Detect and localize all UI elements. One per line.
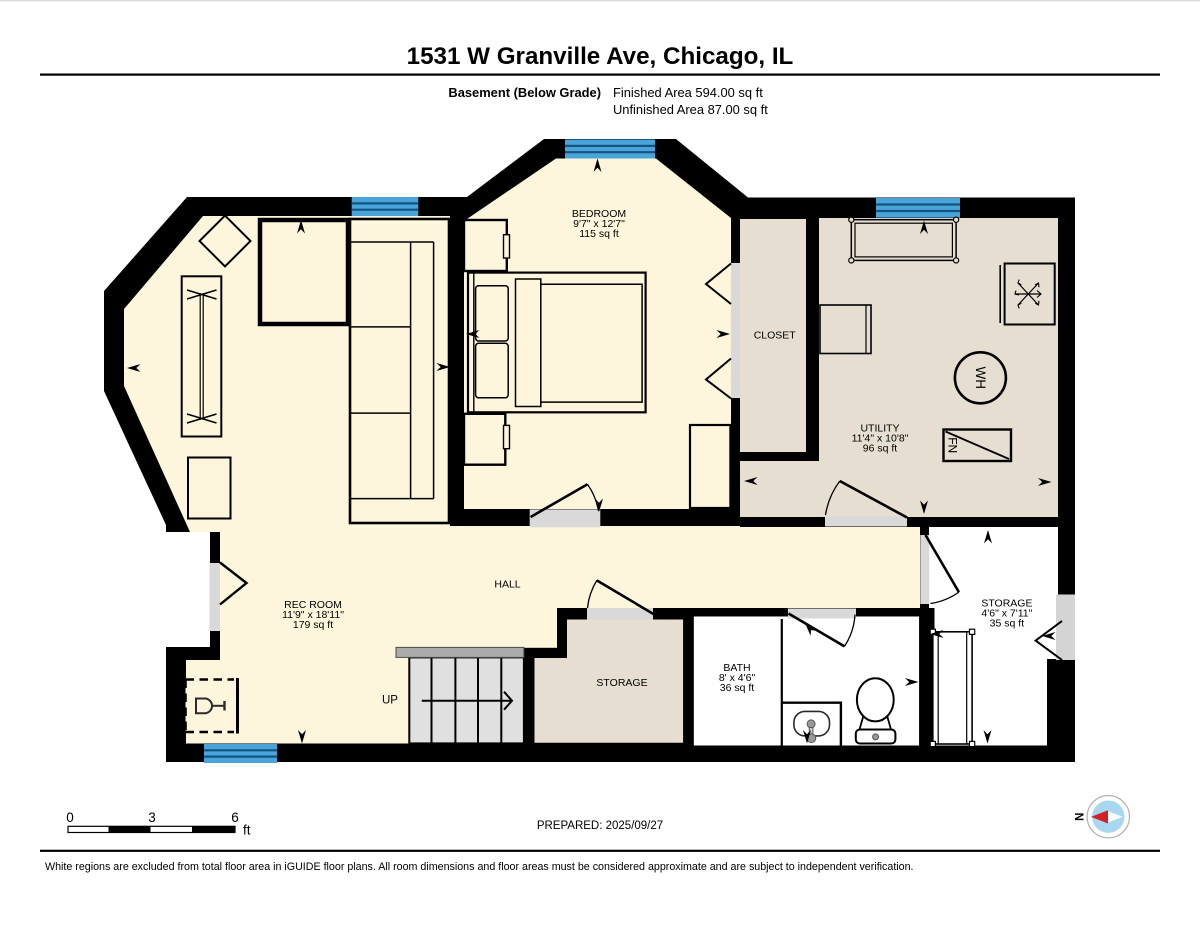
svg-text:3: 3 xyxy=(148,810,156,825)
svg-text:115 sq ft: 115 sq ft xyxy=(579,228,619,240)
svg-text:WH: WH xyxy=(973,367,988,390)
svg-text:Unfinished Area 87.00 sq ft: Unfinished Area 87.00 sq ft xyxy=(613,102,768,117)
svg-text:STORAGE: STORAGE xyxy=(596,677,647,689)
svg-text:FN: FN xyxy=(946,437,960,453)
svg-text:N: N xyxy=(1075,813,1087,821)
svg-text:6: 6 xyxy=(231,810,239,825)
svg-text:96 sq ft: 96 sq ft xyxy=(863,443,898,455)
svg-text:CLOSET: CLOSET xyxy=(754,330,797,342)
svg-text:Finished Area 594.00 sq ft: Finished Area 594.00 sq ft xyxy=(613,85,763,100)
svg-text:Basement (Below Grade): Basement (Below Grade) xyxy=(448,85,601,100)
svg-text:ft: ft xyxy=(243,823,251,838)
svg-text:35 sq ft: 35 sq ft xyxy=(990,618,1025,630)
svg-text:White regions are excluded fro: White regions are excluded from total fl… xyxy=(45,861,914,873)
svg-text:PREPARED: 2025/09/27: PREPARED: 2025/09/27 xyxy=(537,820,663,832)
svg-text:HALL: HALL xyxy=(494,579,520,591)
svg-text:1531 W Granville Ave, Chicago,: 1531 W Granville Ave, Chicago, IL xyxy=(407,43,794,70)
svg-text:36 sq ft: 36 sq ft xyxy=(720,682,755,694)
svg-text:UP: UP xyxy=(382,695,398,707)
svg-text:179 sq ft: 179 sq ft xyxy=(293,619,333,631)
svg-text:0: 0 xyxy=(66,810,74,825)
